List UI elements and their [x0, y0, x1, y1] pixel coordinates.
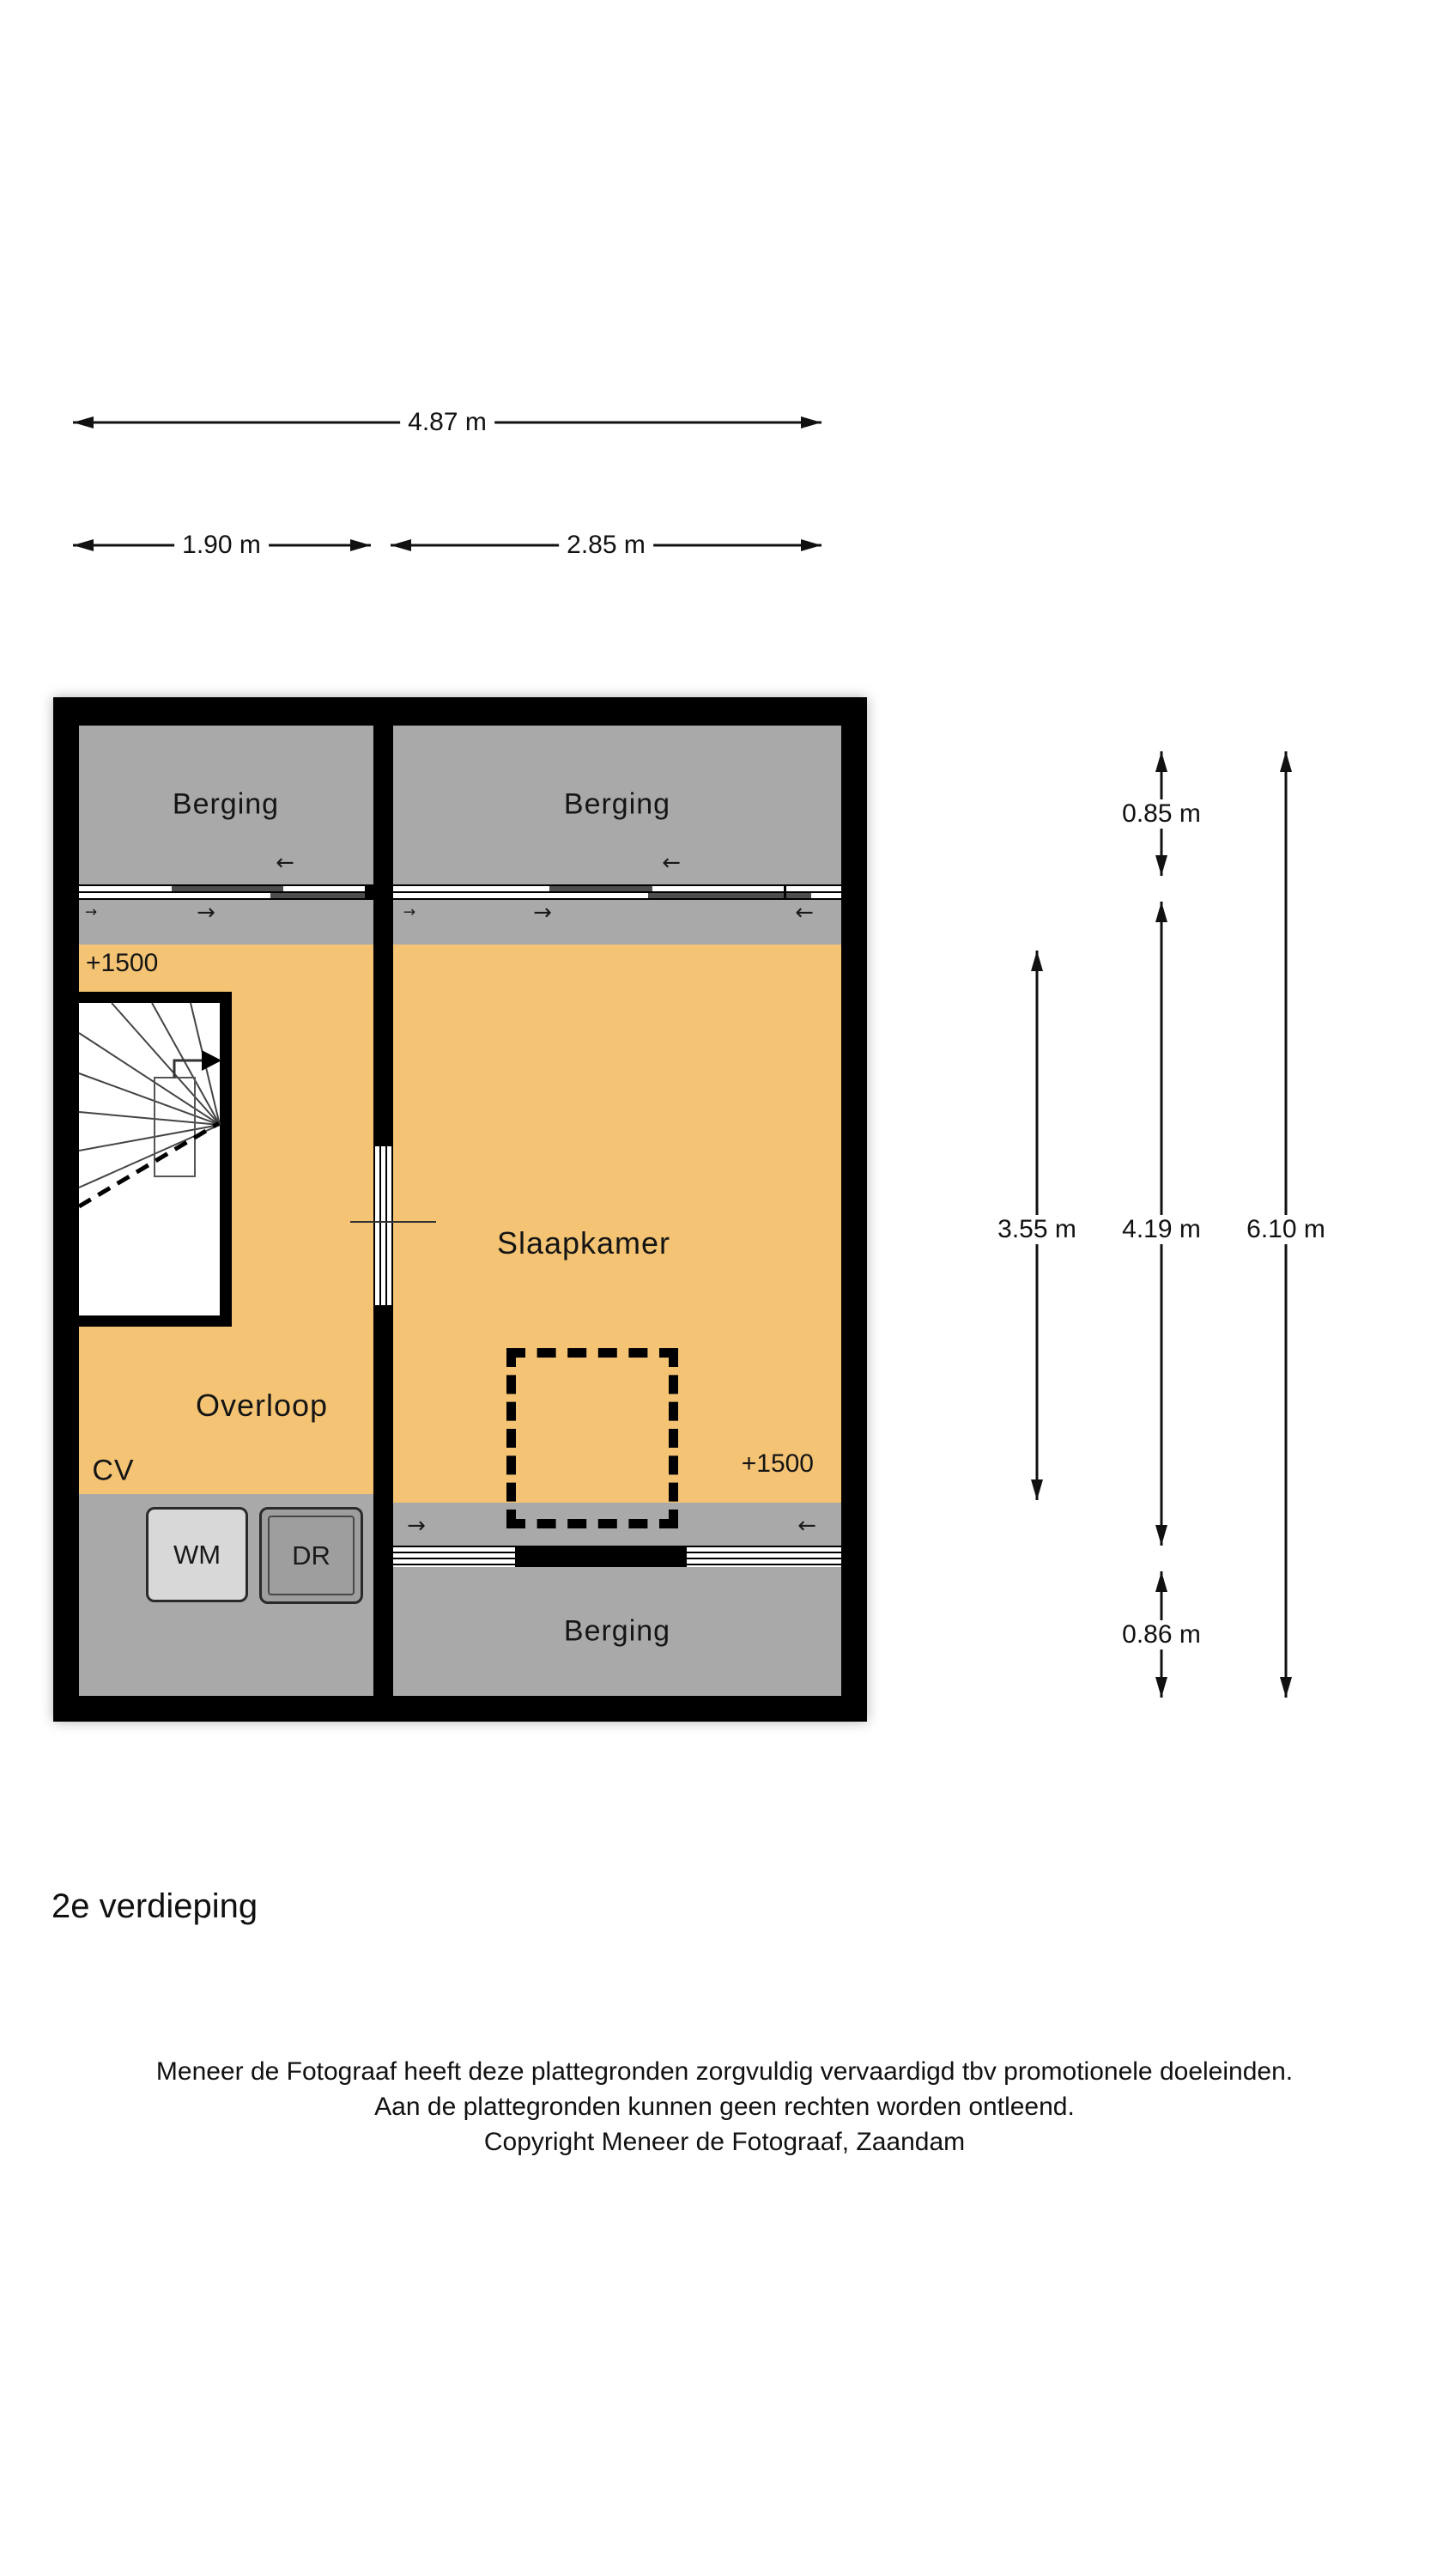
arrowhead-left-icon: [73, 416, 94, 428]
arrowhead-up-icon: [1155, 751, 1167, 772]
footer-line-1: Meneer de Fotograaf heeft deze plattegro…: [0, 2054, 1449, 2089]
dim-label-width-right: 2.85 m: [559, 531, 653, 560]
dim-label-height-left: 3.55 m: [990, 1215, 1084, 1244]
dim-label-width-left: 1.90 m: [174, 531, 269, 560]
footer-line-3: Copyright Meneer de Fotograaf, Zaandam: [0, 2124, 1449, 2160]
dim-label-height-top: 0.85 m: [1114, 799, 1209, 829]
arrowhead-down-icon: [1280, 1677, 1292, 1698]
arrowhead-right-icon: [801, 416, 822, 428]
arrowhead-down-icon: [1155, 1677, 1167, 1698]
dim-label-height-total: 6.10 m: [1239, 1215, 1333, 1244]
arrowhead-down-icon: [1155, 855, 1167, 876]
arrowhead-down-icon: [1155, 1525, 1167, 1546]
arrowhead-up-icon: [1155, 902, 1167, 922]
dim-label-height-bottom: 0.86 m: [1114, 1620, 1209, 1649]
arrowhead-up-icon: [1031, 951, 1043, 971]
arrowhead-down-icon: [1031, 1479, 1043, 1500]
page-title: 2e verdieping: [52, 1887, 258, 1926]
footer-line-2: Aan de plattegronden kunnen geen rechten…: [0, 2089, 1449, 2124]
arrowhead-right-icon: [350, 539, 371, 551]
floorplan-page: WM DR Berging Berging Slaapkamer Overloo…: [0, 0, 1449, 2576]
dim-label-width-total: 4.87 m: [400, 408, 494, 437]
arrowhead-left-icon: [73, 539, 94, 551]
dim-label-height-mid: 4.19 m: [1114, 1215, 1209, 1244]
arrowhead-left-icon: [391, 539, 411, 551]
arrowhead-up-icon: [1280, 751, 1292, 772]
arrowhead-up-icon: [1155, 1571, 1167, 1592]
arrowhead-right-icon: [801, 539, 822, 551]
footer-disclaimer: Meneer de Fotograaf heeft deze plattegro…: [0, 2054, 1449, 2160]
dimension-lines: [0, 0, 1449, 2576]
